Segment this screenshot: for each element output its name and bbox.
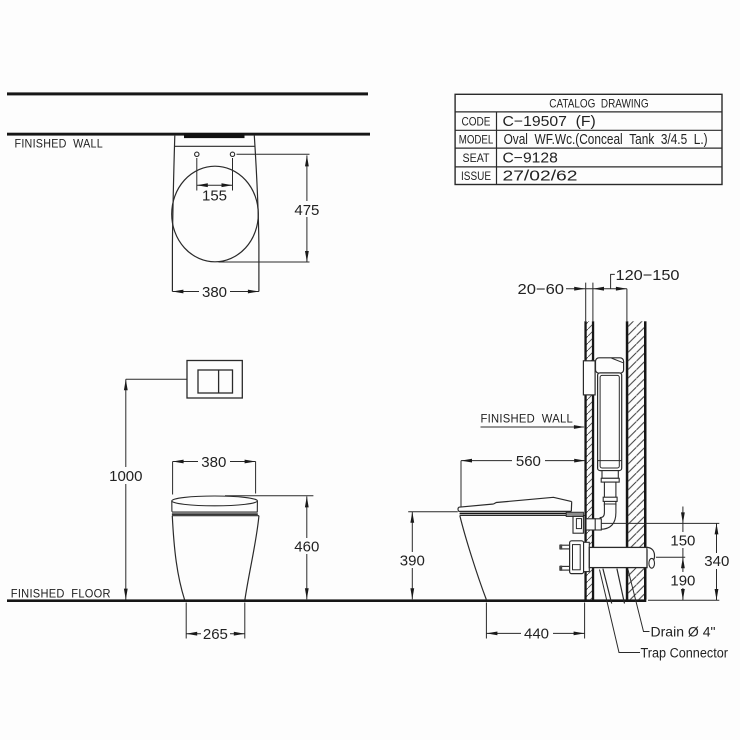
svg-text:150: 150 [670,533,695,550]
svg-text:380: 380 [201,454,226,471]
svg-text:Oval WF.Wc.(Conceal Tank 3/: Oval WF.Wc.(Conceal Tank 3/4.5 L.) [504,132,708,148]
svg-text:475: 475 [294,202,319,219]
svg-text:560: 560 [516,453,541,470]
svg-text:190: 190 [670,572,695,589]
svg-text:ISSUE: ISSUE [461,169,491,183]
svg-text:440: 440 [524,626,549,643]
svg-text:MODEL: MODEL [459,133,494,147]
svg-text:460: 460 [294,539,319,556]
svg-text:265: 265 [203,626,228,643]
svg-text:Trap Connector: Trap Connector [641,645,729,660]
svg-text:FINISHED WALL: FINISHED WALL [15,137,104,151]
svg-text:CATALOG DRAWING: CATALOG DRAWING [549,97,648,111]
svg-text:20−60: 20−60 [518,281,565,298]
svg-text:C−9128: C−9128 [503,151,558,167]
svg-text:FINISHED FLOOR: FINISHED FLOOR [11,586,111,600]
svg-text:27/02/62: 27/02/62 [503,169,578,185]
svg-text:155: 155 [202,188,227,205]
svg-text:1000: 1000 [109,468,142,485]
svg-text:C−19507 (F): C−19507 (F) [503,114,596,130]
svg-text:120−150: 120−150 [616,267,680,284]
svg-text:FINISHED WALL: FINISHED WALL [481,412,574,426]
svg-text:380: 380 [202,284,227,301]
svg-text:390: 390 [400,552,425,569]
svg-text:340: 340 [704,553,729,570]
svg-text:Drain Ø 4": Drain Ø 4" [651,623,716,639]
svg-text:CODE: CODE [462,115,491,129]
svg-text:SEAT: SEAT [463,151,490,165]
